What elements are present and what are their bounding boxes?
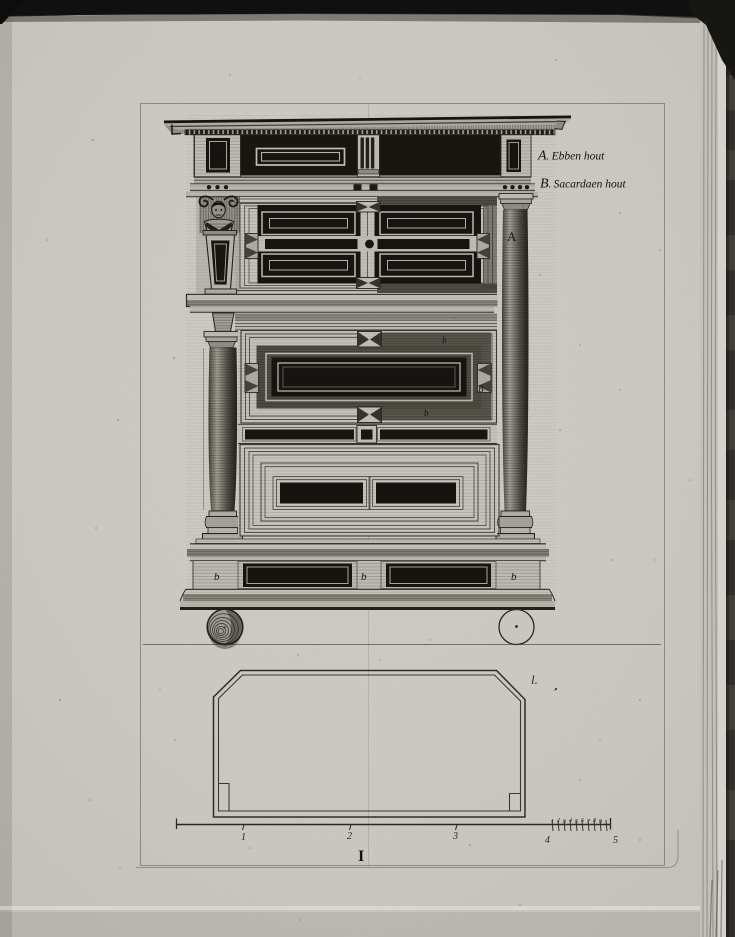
svg-text:1: 1 [551, 819, 554, 825]
svg-text:l.: l. [531, 672, 538, 687]
svg-text:A. Ebben hout: A. Ebben hout [537, 149, 605, 164]
svg-text:6: 6 [581, 818, 584, 824]
svg-text:9: 9 [599, 819, 602, 825]
svg-text:3: 3 [562, 819, 566, 825]
svg-text:3: 3 [452, 831, 458, 842]
svg-text:2: 2 [347, 831, 352, 842]
svg-text:8: 8 [593, 818, 596, 824]
svg-text:5: 5 [575, 819, 578, 825]
svg-text:4: 4 [569, 817, 572, 824]
svg-text:I: I [358, 848, 364, 865]
svg-text:1: 1 [241, 832, 246, 843]
svg-text:4: 4 [545, 835, 550, 846]
svg-text:2: 2 [557, 818, 560, 824]
svg-text:5: 5 [613, 835, 618, 846]
svg-text:B. Sacardaen hout: B. Sacardaen hout [540, 177, 626, 192]
